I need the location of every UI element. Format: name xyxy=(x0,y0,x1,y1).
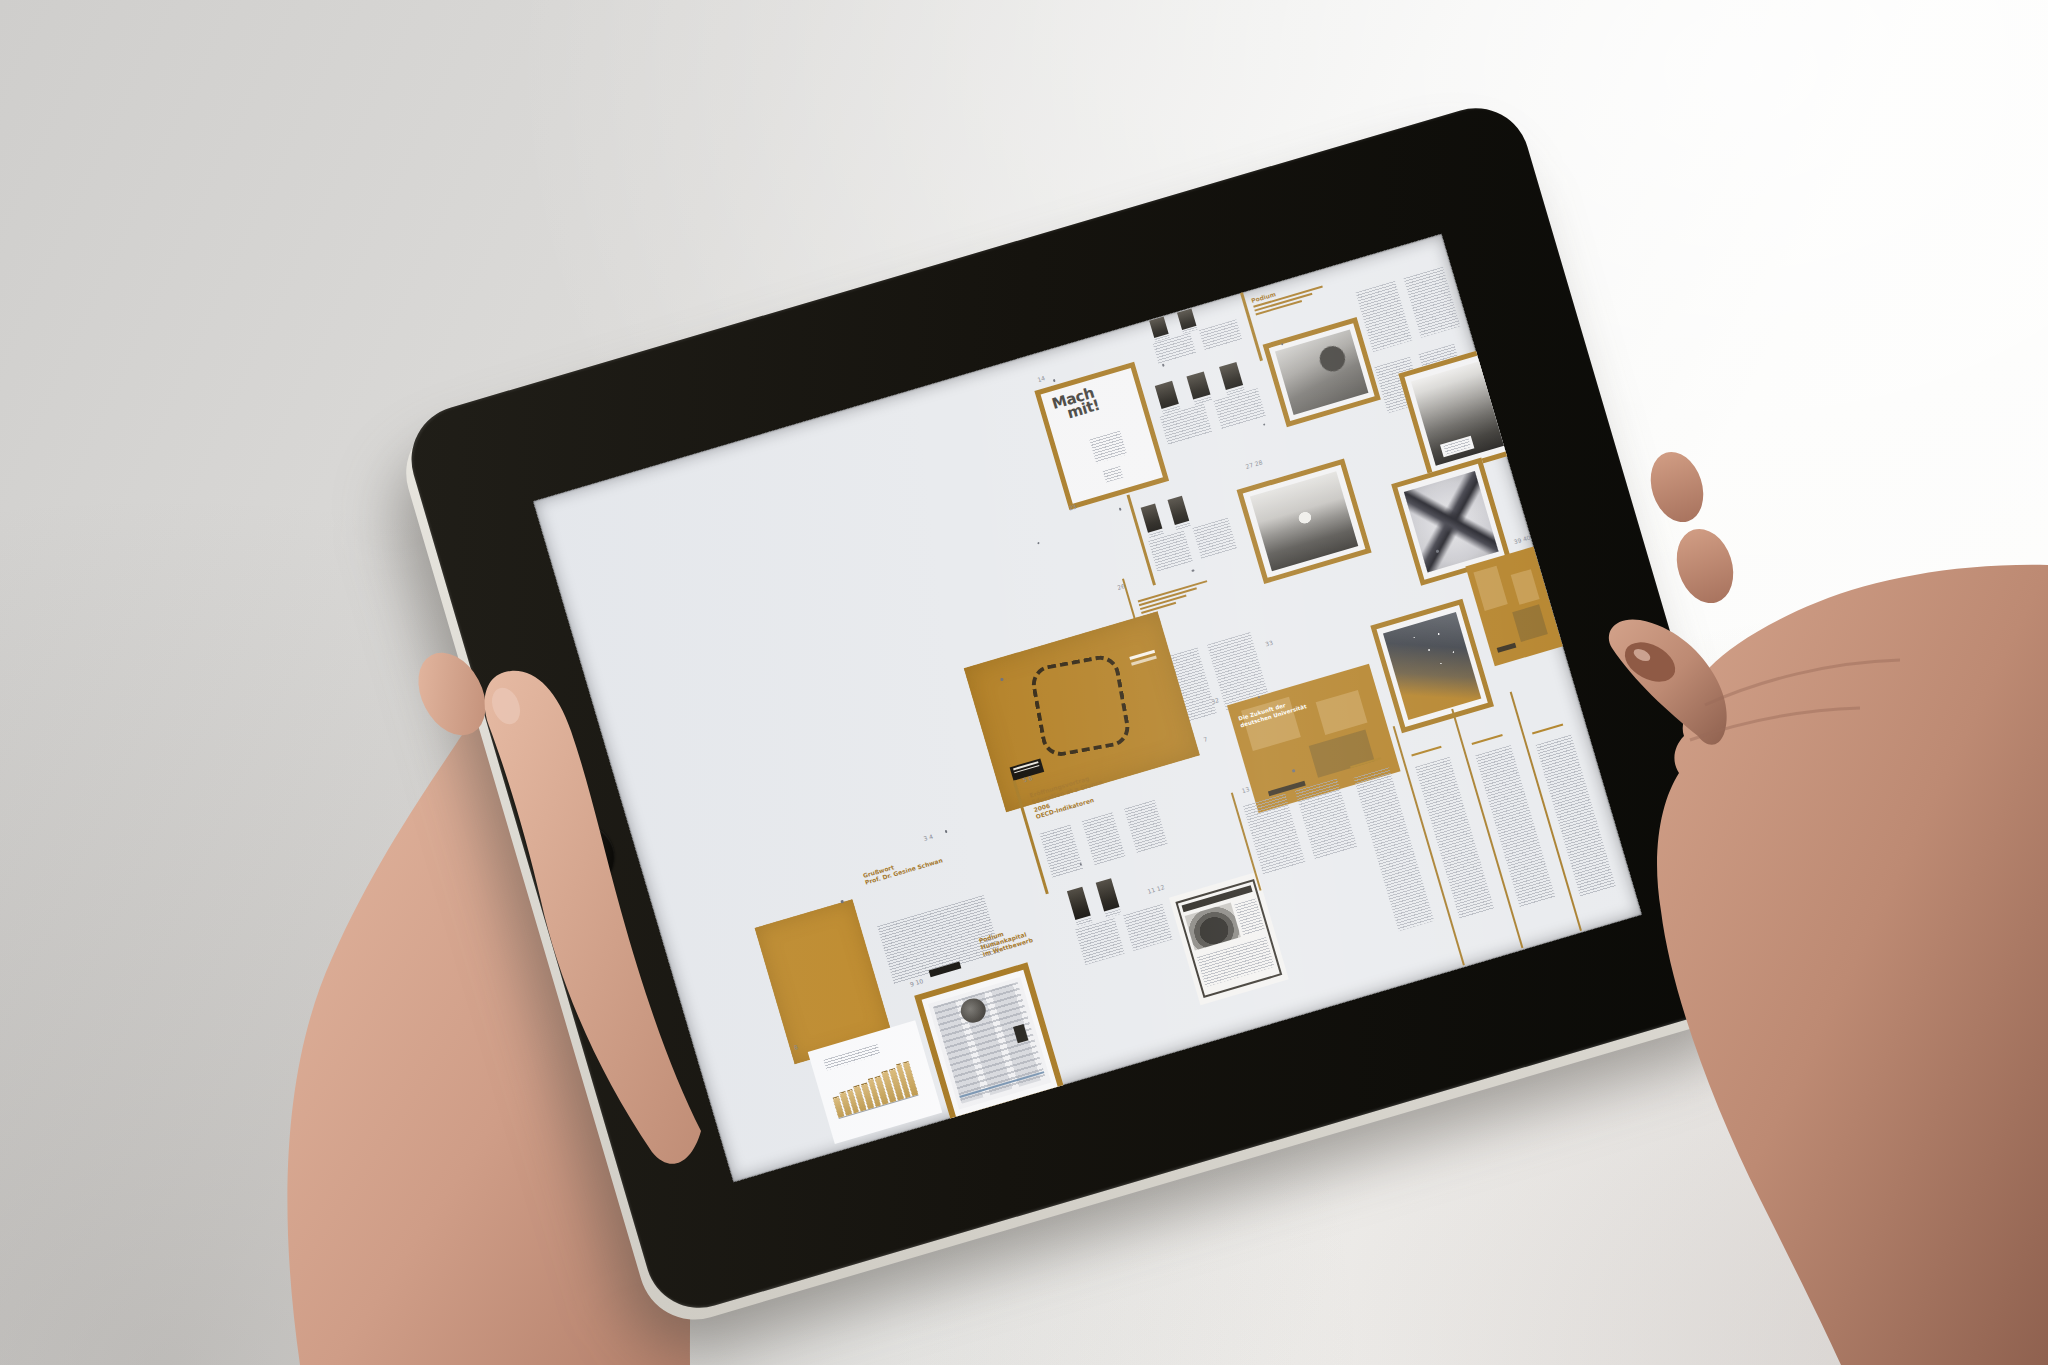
right-fingertip-lower xyxy=(1668,522,1743,611)
left-thumb xyxy=(485,671,701,1164)
right-fingertip-upper xyxy=(1642,445,1712,529)
left-fingertip xyxy=(405,641,499,747)
right-thumb xyxy=(1609,619,1727,744)
hands-front xyxy=(0,0,2048,1365)
photo-scene: PodiumMachmit!Die Zukunft derdeutschen U… xyxy=(0,0,2048,1365)
